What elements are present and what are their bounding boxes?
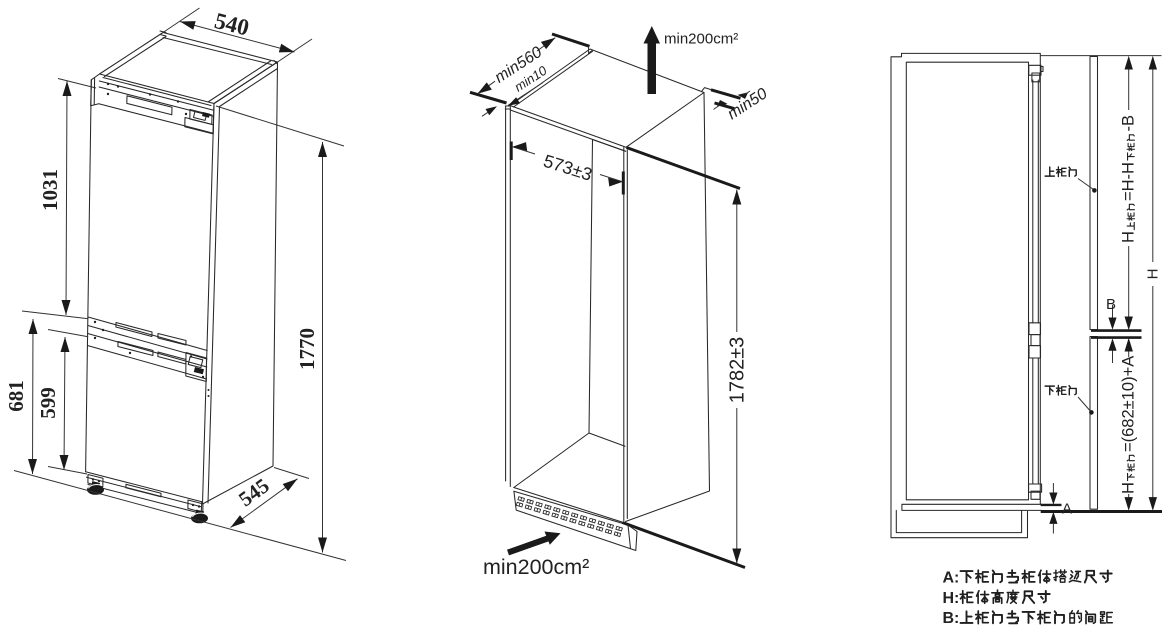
svg-text:1770: 1770 (295, 328, 319, 370)
svg-text:A:: A: (943, 570, 960, 587)
svg-text:1782±3: 1782±3 (727, 337, 749, 404)
svg-text:H: H (1120, 231, 1138, 243)
svg-text:B:: B: (943, 610, 960, 627)
svg-text:A: A (1062, 501, 1072, 518)
svg-text:H:: H: (943, 590, 960, 607)
svg-text:681: 681 (4, 380, 28, 412)
svg-text:H: H (1120, 482, 1138, 494)
svg-text:1031: 1031 (38, 169, 62, 211)
svg-text:=(682±10)+A: =(682±10)+A (1120, 356, 1138, 452)
svg-text:min200cm²: min200cm² (483, 555, 589, 579)
svg-text:=H-H: =H-H (1120, 162, 1138, 201)
svg-text:599: 599 (36, 387, 60, 419)
svg-text:B: B (1106, 296, 1116, 313)
svg-text:H: H (1145, 269, 1162, 280)
svg-text:min200cm²: min200cm² (664, 31, 738, 48)
svg-text:-B: -B (1120, 115, 1138, 132)
